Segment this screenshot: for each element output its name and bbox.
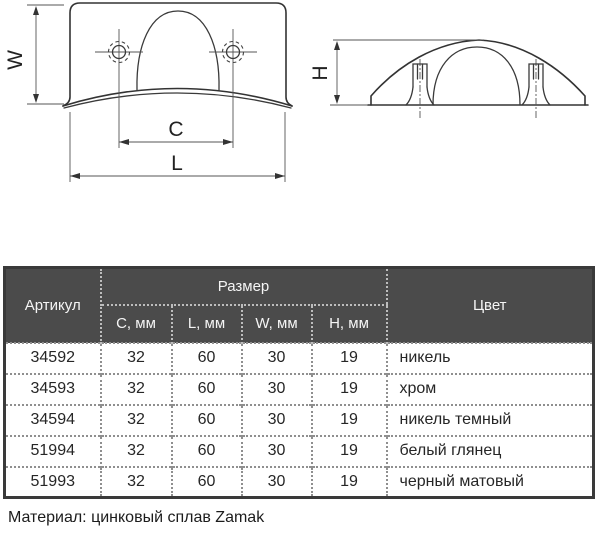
cell-color: хром — [387, 374, 594, 405]
handle-outline — [63, 3, 292, 106]
cell-w: 30 — [242, 405, 312, 436]
cell-l: 60 — [172, 343, 242, 374]
screw-hole-left — [95, 29, 143, 148]
technical-drawing: W C L — [0, 0, 600, 260]
cell-w: 30 — [242, 374, 312, 405]
cell-color: никель — [387, 343, 594, 374]
dimension-h: H — [309, 41, 340, 104]
spec-table: Артикул Размер Цвет C, мм L, мм W, мм H,… — [3, 266, 595, 499]
cell-color: черный матовый — [387, 467, 594, 498]
cell-w: 30 — [242, 436, 312, 467]
product-spec-sheet: W C L — [0, 0, 600, 534]
dim-label-h: H — [309, 65, 332, 80]
cell-h: 19 — [312, 436, 387, 467]
cell-article: 34592 — [5, 343, 101, 374]
cell-c: 32 — [101, 467, 172, 498]
screw-hole-right — [209, 29, 257, 148]
dim-label-w: W — [4, 50, 27, 70]
cell-c: 32 — [101, 343, 172, 374]
cell-c: 32 — [101, 405, 172, 436]
spec-table-header: Артикул Размер Цвет C, мм L, мм W, мм H,… — [5, 268, 594, 343]
cell-h: 19 — [312, 343, 387, 374]
screw-left-side — [406, 59, 434, 119]
header-w-mm: W, мм — [242, 305, 312, 343]
handle-front-edge-inner — [64, 93, 291, 108]
header-h-mm: H, мм — [312, 305, 387, 343]
dimension-w: W — [4, 5, 64, 104]
cell-article: 34593 — [5, 374, 101, 405]
dim-label-l: L — [171, 152, 183, 175]
cell-h: 19 — [312, 467, 387, 498]
header-l-mm: L, мм — [172, 305, 242, 343]
handle-side-view: H — [309, 40, 588, 119]
cell-c: 32 — [101, 436, 172, 467]
header-color: Цвет — [387, 268, 594, 343]
table-row: 51994 32 60 30 19 белый глянец — [5, 436, 594, 467]
table-row: 51993 32 60 30 19 черный матовый — [5, 467, 594, 498]
side-dome-outline — [371, 40, 585, 105]
cell-h: 19 — [312, 405, 387, 436]
cell-l: 60 — [172, 374, 242, 405]
cell-c: 32 — [101, 374, 172, 405]
cell-w: 30 — [242, 467, 312, 498]
cell-color: никель темный — [387, 405, 594, 436]
header-size-group: Размер — [101, 268, 387, 305]
side-grip-arch — [433, 47, 520, 105]
material-note: Материал: цинковый сплав Zamak — [8, 509, 264, 527]
cell-l: 60 — [172, 467, 242, 498]
handle-front-edge — [63, 89, 292, 107]
table-row: 34594 32 60 30 19 никель темный — [5, 405, 594, 436]
cell-article: 34594 — [5, 405, 101, 436]
handle-top-view: W C L — [4, 3, 292, 182]
cell-article: 51994 — [5, 436, 101, 467]
header-c-mm: C, мм — [101, 305, 172, 343]
header-article: Артикул — [5, 268, 101, 343]
cell-color: белый глянец — [387, 436, 594, 467]
dimension-c: C — [119, 118, 233, 145]
cell-article: 51993 — [5, 467, 101, 498]
cell-l: 60 — [172, 436, 242, 467]
screw-right-side — [522, 59, 550, 119]
dim-label-c: C — [168, 118, 183, 141]
cell-l: 60 — [172, 405, 242, 436]
grip-arch — [137, 11, 219, 90]
table-row: 34592 32 60 30 19 никель — [5, 343, 594, 374]
cell-h: 19 — [312, 374, 387, 405]
table-row: 34593 32 60 30 19 хром — [5, 374, 594, 405]
cell-w: 30 — [242, 343, 312, 374]
